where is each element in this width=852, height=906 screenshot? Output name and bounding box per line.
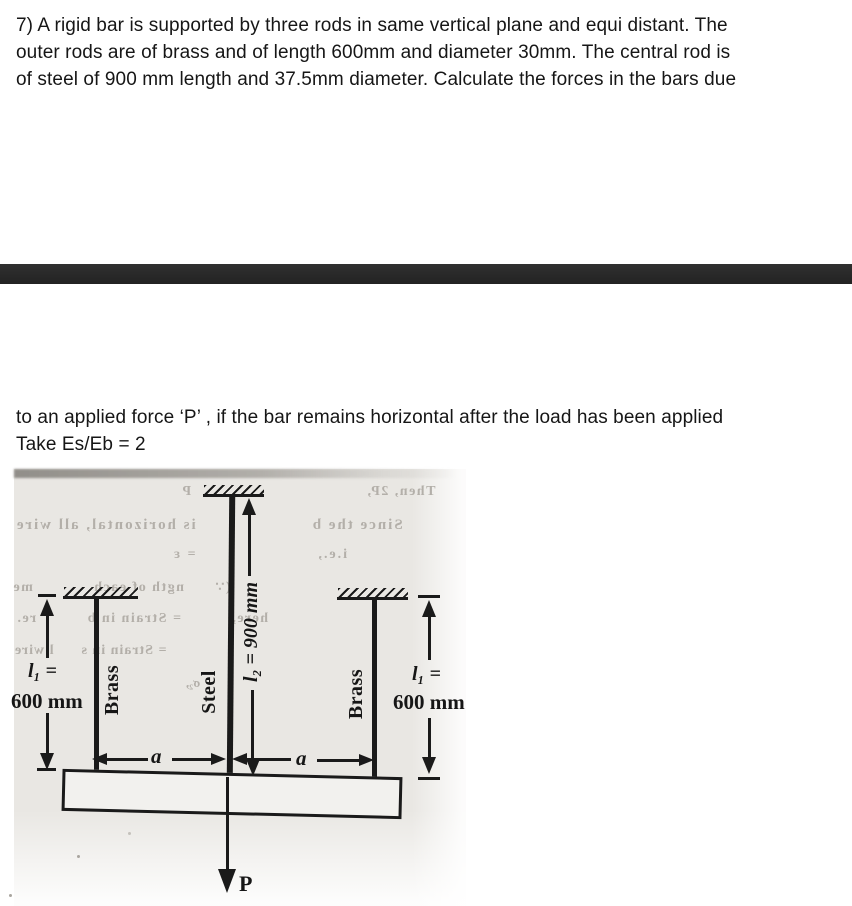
right-length-value: 600 mm — [393, 690, 465, 715]
right-rod-material-label: Brass — [345, 634, 367, 754]
dimension-arrow-right-icon — [211, 753, 226, 765]
spacing-line — [104, 758, 148, 761]
scan-top-smudge — [14, 469, 466, 478]
spacing-left-label: a — [151, 744, 162, 769]
scan-speck — [77, 855, 80, 858]
right-dimension-line — [428, 718, 431, 760]
section-divider-bar — [0, 264, 852, 284]
dimension-arrow-down-icon — [422, 757, 436, 774]
problem-line: Take Es/Eb = 2 — [16, 431, 816, 458]
document-page: 7) A rigid bar is supported by three rod… — [0, 0, 852, 906]
rigid-bar — [62, 769, 403, 819]
left-length-symbol: l₁ = — [28, 660, 57, 683]
dimension-arrow-right-icon — [359, 754, 374, 766]
problem-text-part2: to an applied force ‘P’ , if the bar rem… — [16, 404, 816, 458]
dimension-tick — [37, 768, 56, 771]
bleedthrough-text: Since the b is horizontal, all wire — [15, 517, 403, 534]
force-line — [226, 777, 229, 873]
center-rod-material-label: Steel — [198, 632, 220, 752]
dimension-tick — [418, 595, 440, 598]
scan-speck — [9, 894, 12, 897]
dimension-tick — [418, 777, 440, 780]
dimension-tick — [38, 594, 56, 597]
dimension-arrow-up-icon — [242, 498, 256, 515]
bleedthrough-text: i.e., = ε — [172, 547, 347, 563]
center-dimension-line — [251, 690, 254, 760]
left-dimension-line — [46, 713, 49, 755]
spacing-line — [317, 759, 361, 762]
right-length-symbol: l₁ = — [412, 663, 441, 686]
spacing-line — [172, 758, 214, 761]
right-dimension-line — [428, 615, 431, 660]
problem-line: to an applied force ‘P’ , if the bar rem… — [16, 404, 816, 431]
problem-line: of steel of 900 mm length and 37.5mm dia… — [16, 66, 816, 93]
left-rod-material-label: Brass — [101, 630, 123, 750]
bleedthrough-text: = Strain in s l wire — [14, 643, 167, 659]
left-length-value: 600 mm — [11, 689, 83, 714]
force-arrow-down-icon — [218, 869, 236, 893]
spacing-line — [245, 758, 291, 761]
spacing-right-label: a — [296, 746, 307, 771]
left-brass-rod — [94, 599, 99, 773]
problem-text-part1: 7) A rigid bar is supported by three rod… — [16, 12, 816, 93]
problem-line: 7) A rigid bar is supported by three rod… — [16, 12, 816, 39]
center-length-label: l₂ = 900 mm — [240, 567, 262, 697]
force-label: P — [239, 871, 252, 897]
left-support-line — [63, 596, 138, 599]
scan-speck — [128, 832, 131, 835]
problem-line: outer rods are of brass and of length 60… — [16, 39, 816, 66]
left-dimension-line — [46, 614, 49, 658]
